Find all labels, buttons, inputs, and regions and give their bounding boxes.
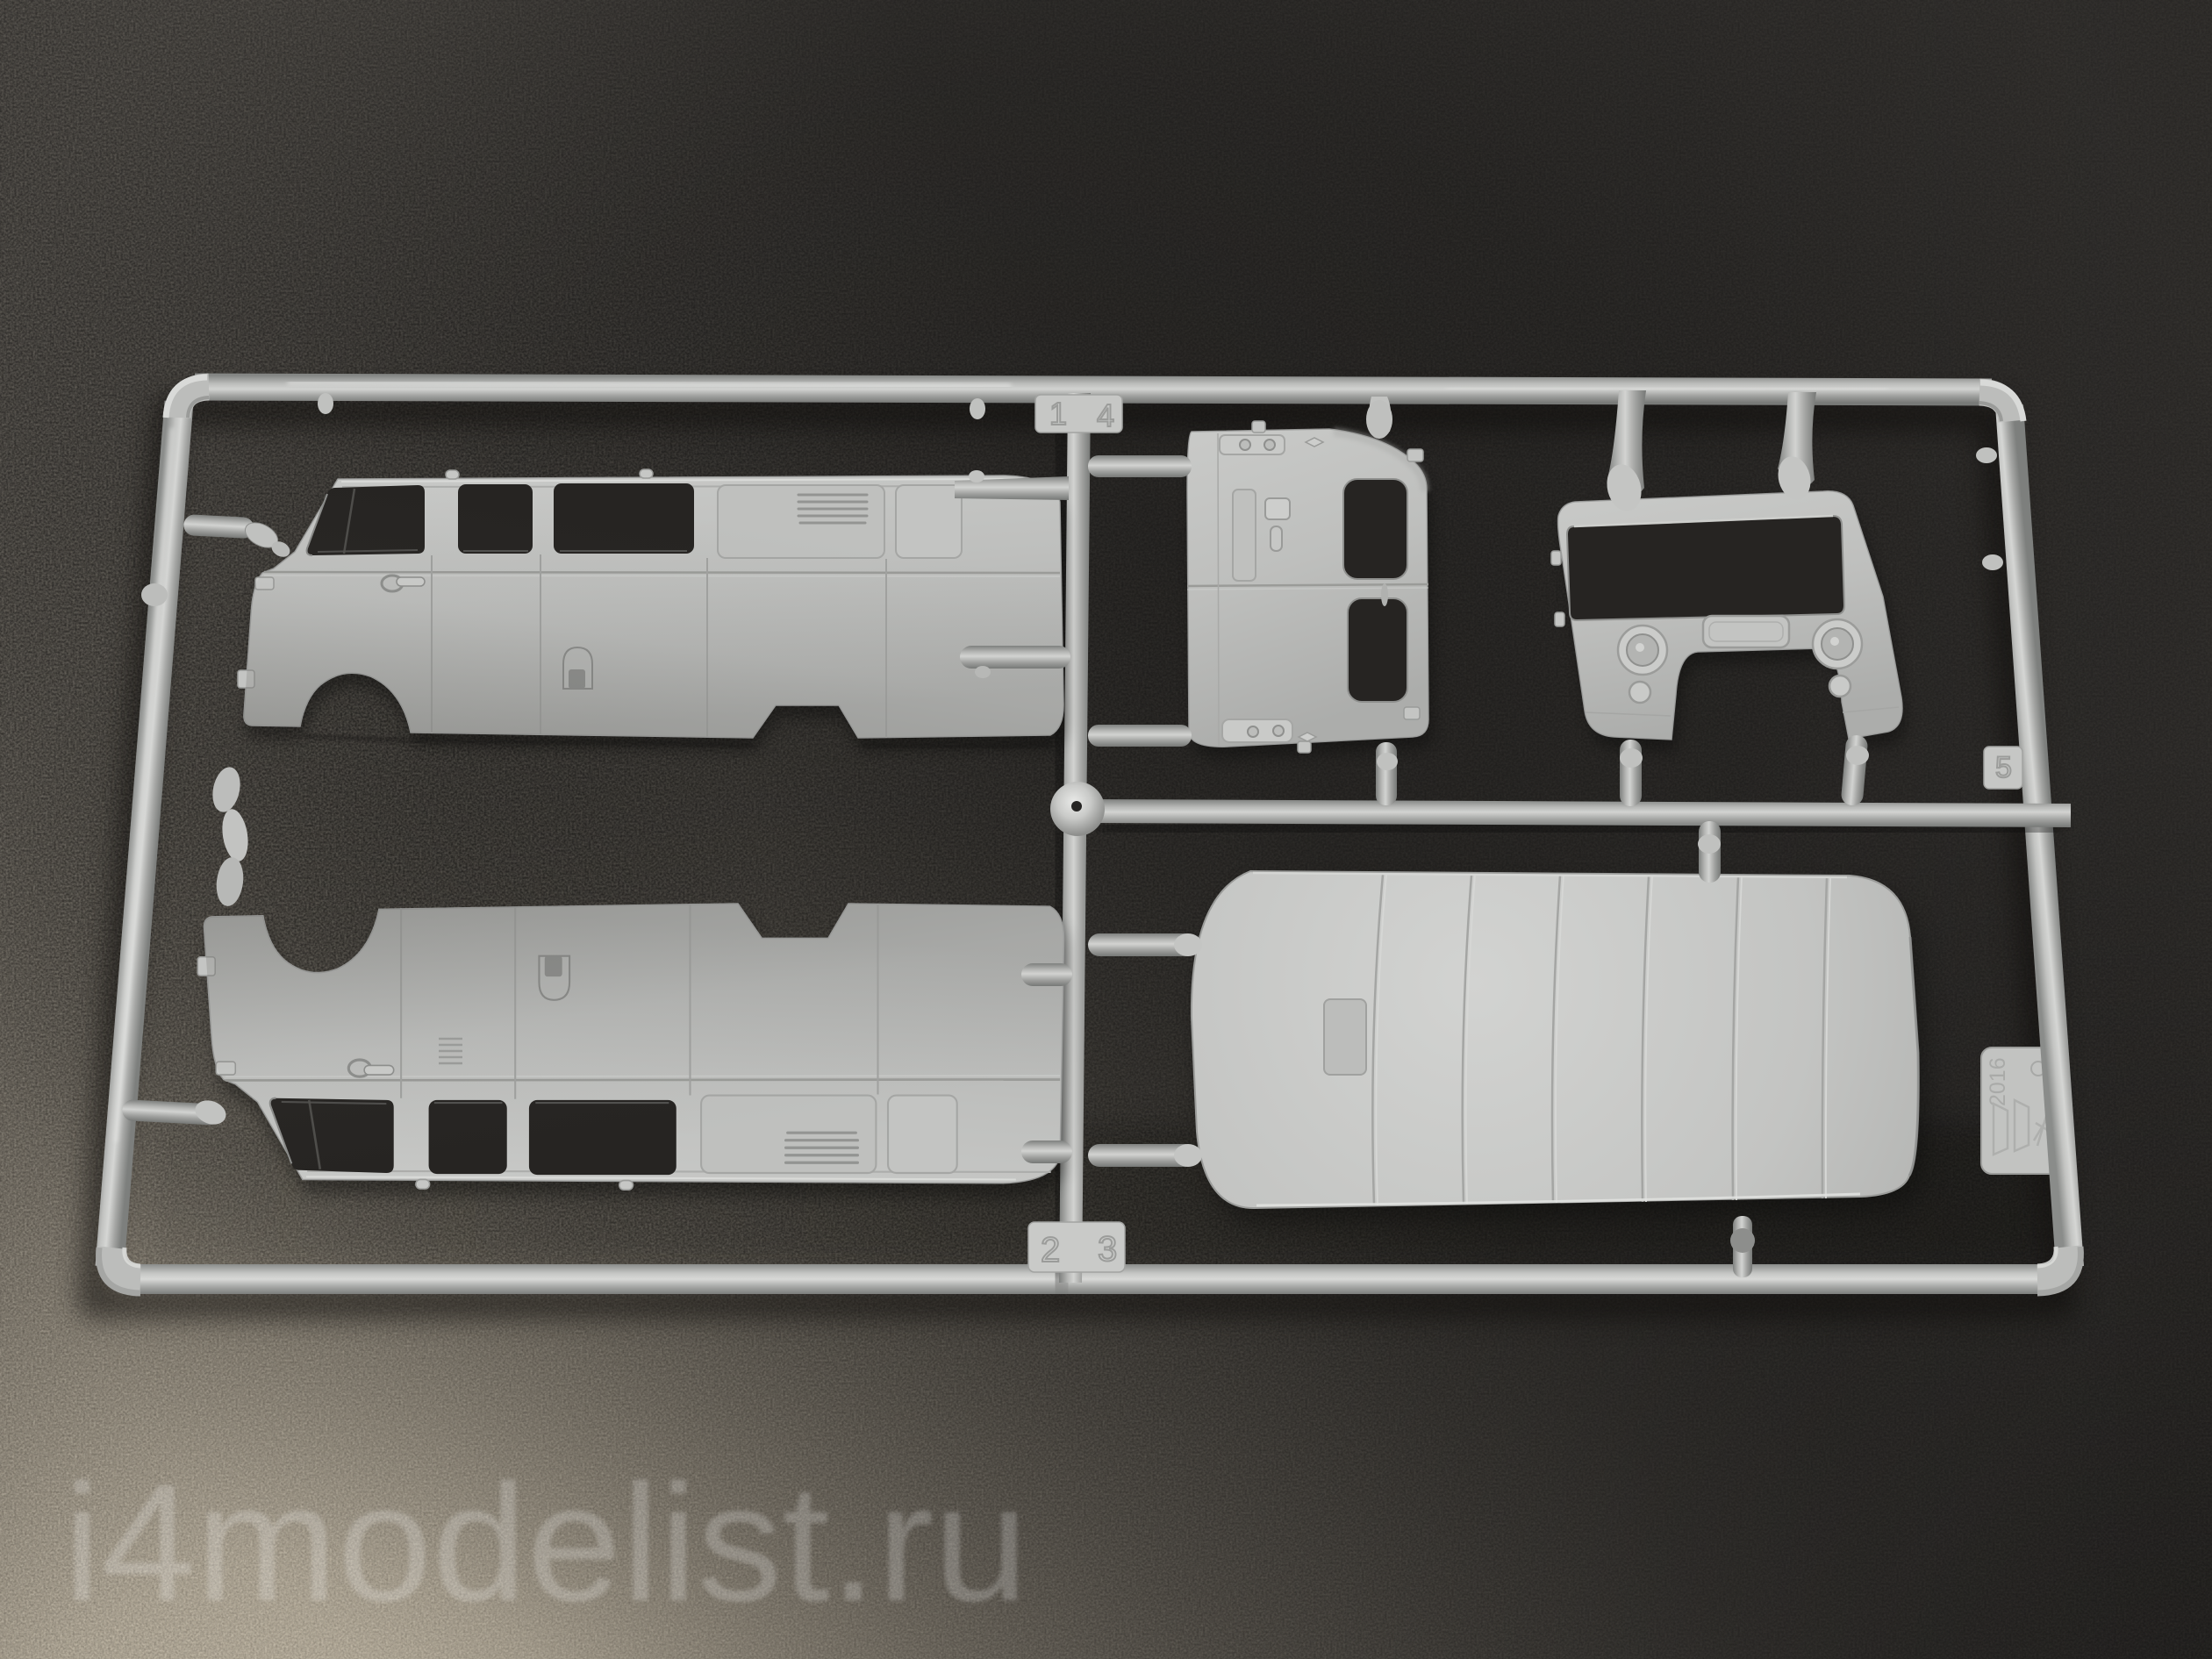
svg-text:i4modelist.ru: i4modelist.ru xyxy=(63,1450,1028,1636)
svg-text:4: 4 xyxy=(1097,397,1114,433)
svg-text:2016: 2016 xyxy=(1986,1057,2010,1106)
svg-text:5: 5 xyxy=(1995,751,2012,784)
svg-text:3: 3 xyxy=(1098,1230,1117,1269)
svg-text:2: 2 xyxy=(1041,1231,1060,1269)
svg-text:1: 1 xyxy=(1049,396,1067,432)
